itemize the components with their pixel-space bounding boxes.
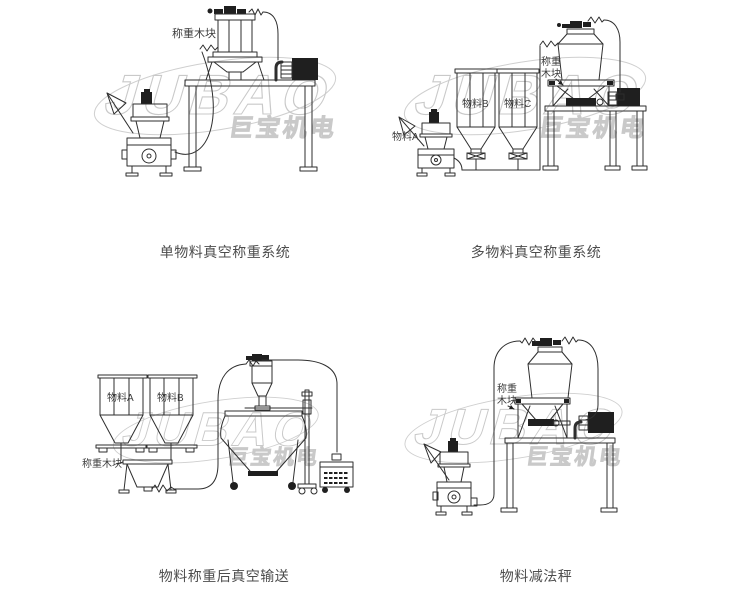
page: JUBAO 巨宝机电 (0, 0, 750, 600)
weighing-module-label: 称重木块 (172, 26, 216, 40)
caption-figure4: 物料减法秤 (450, 566, 622, 586)
caption-figure3: 物料称重后真空输送 (138, 566, 310, 586)
material-b-label: 物料B (157, 391, 184, 404)
discharge-valve-icon (557, 21, 591, 28)
caption-figure2: 多物料真空称重系统 (450, 242, 622, 262)
svg-text:木块: 木块 (497, 395, 517, 407)
vacuum-pump-unit (320, 462, 353, 493)
caption-figure1: 单物料真空称重系统 (140, 242, 310, 262)
watermark-bottom-left (109, 385, 324, 475)
material-b-label: 物料B (462, 97, 489, 110)
svg-text:称重: 称重 (541, 55, 561, 68)
weighing-hopper (119, 460, 176, 493)
svg-text:木块: 木块 (541, 68, 561, 80)
material-a-label: 物料A (392, 130, 419, 143)
discharge-valve-icon (208, 6, 247, 14)
material-a-label: 物料A (107, 391, 134, 404)
diagram-sheet: JUBAO 巨宝机电 (0, 0, 750, 600)
material-c-label: 物料C (504, 97, 531, 110)
weighing-module-label: 称重 木块 (497, 382, 517, 409)
weighing-module-label: 称重木块 (82, 457, 123, 470)
svg-text:称重: 称重 (497, 382, 517, 395)
svg-text:称重木块: 称重木块 (82, 457, 122, 470)
